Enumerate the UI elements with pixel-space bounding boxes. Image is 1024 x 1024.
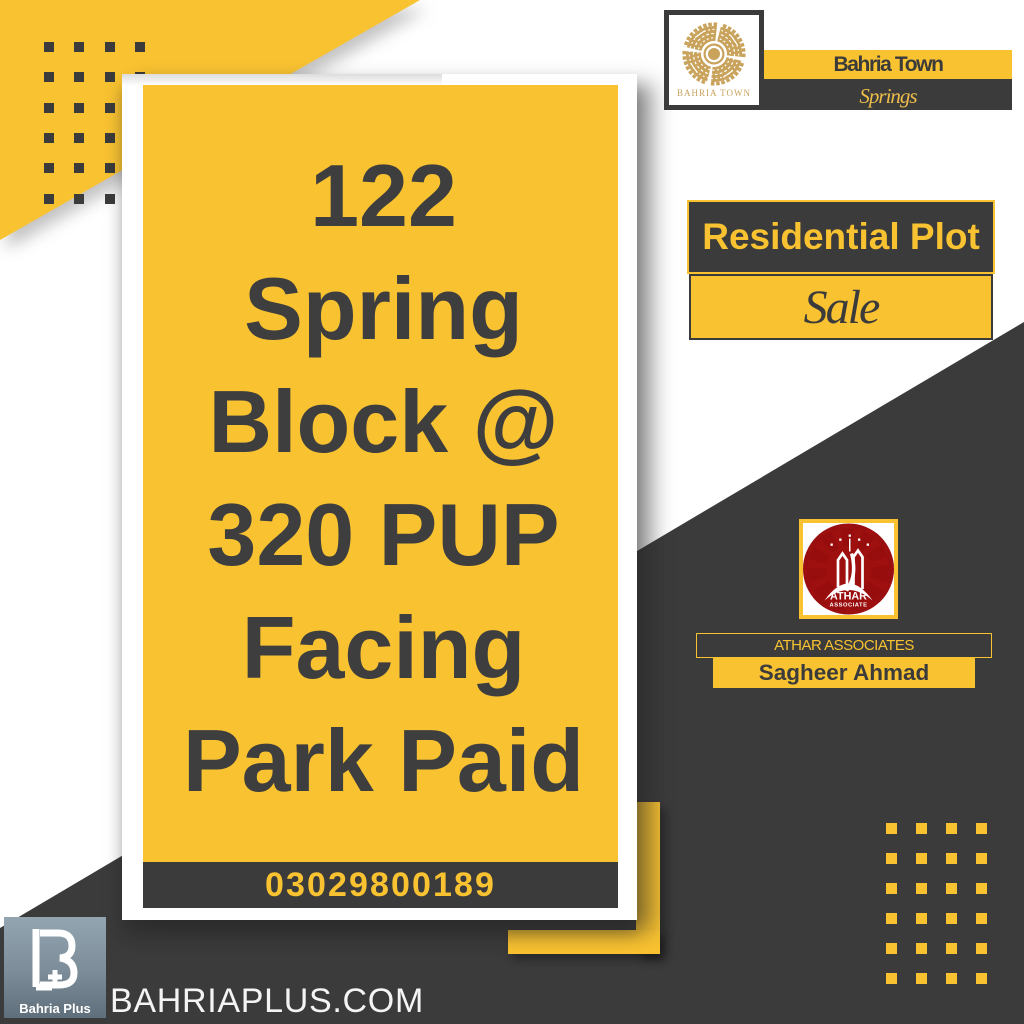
svg-text:ASSOCIATE: ASSOCIATE (830, 603, 868, 609)
svg-text:ATHAR: ATHAR (830, 591, 867, 603)
